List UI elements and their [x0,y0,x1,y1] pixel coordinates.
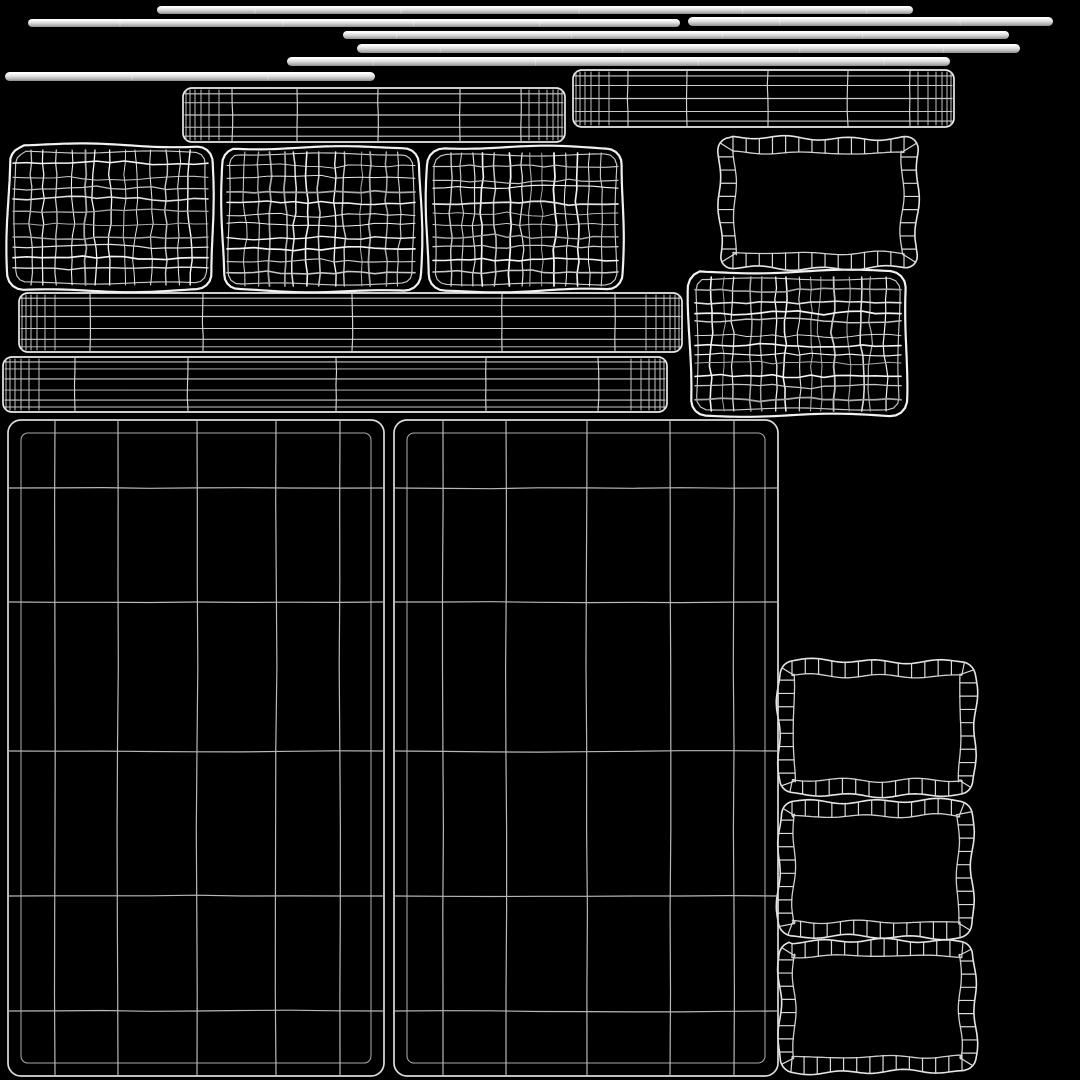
wireframe-scene [0,0,1080,1080]
piping-rod-1 [157,6,913,14]
piping-rod-6 [287,57,950,66]
roll-tube-3 [19,293,682,352]
border-ladder-4 [778,938,978,1074]
cushion-pillow-3 [426,146,624,293]
piping-rod-2 [28,19,680,27]
roll-tube-4 [3,357,667,412]
border-ladder-3 [776,798,974,939]
cushion-pillow-1 [6,143,213,292]
base-panel-left [8,420,384,1076]
piping-rod-7 [5,72,375,81]
piping-rod-3 [688,17,1053,26]
uv-wireframe-sheet [0,0,1080,1080]
base-panel-right [394,420,778,1076]
border-ladder-2 [776,658,977,797]
piping-rod-5 [357,44,1020,53]
piping-rod-4 [343,31,1009,39]
border-ladder-1 [718,136,920,271]
cushion-pillow-2 [221,146,422,292]
cushion-pillow-4 [688,270,908,417]
roll-tube-1 [573,70,954,127]
roll-tube-2 [183,88,565,142]
